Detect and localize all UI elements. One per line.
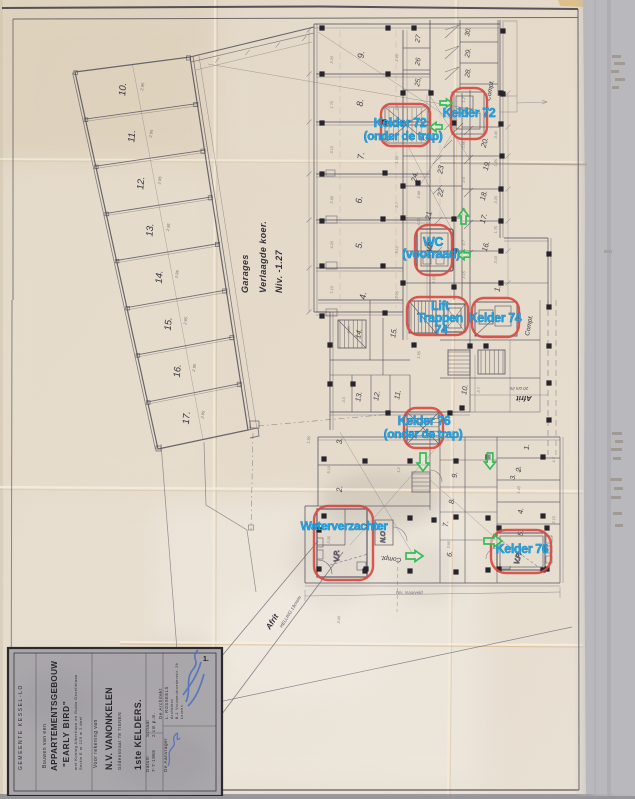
- svg-text:Sectie E nr 229 m 2 deel: Sectie E nr 229 m 2 deel: [79, 716, 83, 770]
- svg-text:2.05: 2.05: [327, 535, 332, 545]
- svg-text:3.: 3.: [510, 474, 517, 480]
- svg-text:74: 74: [434, 323, 448, 337]
- svg-text:14.: 14.: [154, 270, 166, 284]
- svg-text:5.: 5.: [354, 240, 365, 249]
- svg-text:2.98: 2.98: [417, 190, 422, 200]
- svg-text:2.45: 2.45: [395, 53, 400, 63]
- svg-text:7-7-1965: 7-7-1965: [151, 750, 156, 772]
- svg-text:Niv. -1.27: Niv. -1.27: [274, 249, 284, 293]
- svg-text:12.: 12.: [135, 176, 147, 190]
- svg-text:10.: 10.: [117, 82, 129, 96]
- svg-text:4.: 4.: [358, 291, 369, 300]
- svg-text:GEMEENTE KESSEL-LO: GEMEENTE KESSEL-LO: [18, 684, 24, 770]
- svg-text:De Architekt: De Architekt: [158, 688, 163, 719]
- svg-text:"EARLY BIRD": "EARLY BIRD": [62, 701, 71, 768]
- svg-text:5.10: 5.10: [395, 245, 400, 254]
- svg-text:2.: 2.: [514, 465, 524, 473]
- svg-text:1.: 1.: [203, 656, 209, 663]
- svg-text:2.15: 2.15: [552, 515, 557, 525]
- svg-text:7.: 7.: [356, 151, 367, 160]
- svg-text:Kelder 76: Kelder 76: [496, 542, 549, 556]
- svg-text:1.: 1.: [522, 443, 532, 450]
- svg-text:Leuven: Leuven: [180, 705, 184, 719]
- svg-text:B.J. Vrouwenbroedersstr. 26: B.J. Vrouwenbroedersstr. 26: [175, 663, 179, 719]
- svg-text:1.95: 1.95: [417, 350, 422, 359]
- svg-text:1.85: 1.85: [307, 435, 312, 444]
- svg-text:3.: 3.: [335, 437, 345, 444]
- svg-text:Gildenstraat 78 TIENEN: Gildenstraat 78 TIENEN: [117, 712, 122, 770]
- svg-text:(onder de trap): (onder de trap): [364, 129, 443, 143]
- svg-text:Niv. maaiveld: Niv. maaiveld: [396, 590, 423, 595]
- svg-text:3.85: 3.85: [462, 140, 467, 149]
- svg-text:(onder de trap): (onder de trap): [384, 427, 463, 441]
- svg-text:Kelder 72: Kelder 72: [374, 116, 427, 130]
- svg-text:Bouwen van een: Bouwen van een: [42, 724, 48, 768]
- svg-text:13.: 13.: [144, 223, 156, 237]
- svg-text:Waterverzachter: Waterverzachter: [301, 519, 389, 533]
- svg-text:11.: 11.: [126, 130, 138, 143]
- svg-text:4.: 4.: [516, 507, 526, 514]
- svg-text:1.10: 1.10: [432, 275, 437, 284]
- svg-text:21: 21: [423, 211, 433, 222]
- svg-text:8.: 8.: [355, 98, 366, 107]
- svg-text:Architect: Architect: [169, 699, 174, 719]
- svg-text:Voor rekening van: Voor rekening van: [93, 719, 99, 768]
- svg-text:9.: 9.: [450, 471, 460, 478]
- svg-text:1.85: 1.85: [494, 158, 499, 167]
- svg-text:1.45: 1.45: [517, 485, 522, 494]
- svg-text:2.05: 2.05: [395, 290, 400, 300]
- svg-text:8.: 8.: [447, 497, 457, 504]
- svg-text:2.20: 2.20: [494, 195, 499, 205]
- svg-text:12.: 12.: [371, 390, 382, 402]
- svg-text:De Aanvrager: De Aanvrager: [163, 738, 168, 772]
- svg-text:14.: 14.: [353, 328, 364, 340]
- svg-text:2.15: 2.15: [462, 270, 467, 280]
- svg-text:Verlaagde koer.: Verlaagde koer.: [258, 221, 268, 293]
- svg-text:N.V. VANONKELEN: N.V. VANONKELEN: [104, 687, 114, 770]
- svg-text:6.: 6.: [354, 195, 365, 204]
- svg-text:17.: 17.: [181, 411, 193, 425]
- svg-text:1.75: 1.75: [494, 225, 499, 234]
- svg-text:1ste KELDERS.: 1ste KELDERS.: [133, 699, 143, 770]
- svg-text:11.: 11.: [392, 389, 403, 400]
- svg-text:2.98: 2.98: [330, 195, 335, 205]
- svg-text:(voorraad): (voorraad): [402, 247, 460, 261]
- svg-text:15.: 15.: [388, 327, 399, 339]
- svg-text:Kelder 76: Kelder 76: [398, 414, 451, 428]
- svg-text:4.20: 4.20: [330, 240, 335, 249]
- svg-text:13.: 13.: [353, 391, 364, 403]
- svg-text:5.10: 5.10: [327, 465, 332, 474]
- svg-text:Kelder 72: Kelder 72: [443, 106, 496, 120]
- svg-text:3.40: 3.40: [337, 615, 342, 624]
- svg-text:6.: 6.: [445, 550, 455, 557]
- svg-text:3.10: 3.10: [330, 145, 335, 154]
- svg-text:1.10: 1.10: [330, 285, 335, 294]
- svg-text:20 cm /m: 20 cm /m: [510, 386, 530, 391]
- svg-text:Afrit: Afrit: [516, 394, 533, 403]
- svg-text:1.75: 1.75: [330, 100, 335, 109]
- svg-text:2.: 2.: [335, 485, 345, 493]
- svg-text:Garages: Garages: [240, 254, 250, 293]
- svg-text:3.40: 3.40: [494, 130, 499, 139]
- svg-text:15.: 15.: [163, 317, 175, 331]
- svg-text:met Koning Albertlaan en Guido: met Koning Albertlaan en Guido Gezellela…: [74, 674, 78, 770]
- svg-text:1.95: 1.95: [395, 155, 400, 164]
- svg-text:APPARTEMENTSGEBOUW: APPARTEMENTSGEBOUW: [50, 661, 59, 771]
- svg-text:2.20: 2.20: [330, 55, 335, 65]
- svg-text:3.10: 3.10: [494, 255, 499, 264]
- svg-text:7.: 7.: [441, 520, 451, 527]
- svg-text:3.85: 3.85: [447, 540, 452, 549]
- svg-text:Kelder 74: Kelder 74: [469, 311, 522, 325]
- svg-text:16.: 16.: [172, 364, 184, 378]
- svg-text:10.: 10.: [459, 384, 470, 396]
- svg-text:4.20: 4.20: [417, 217, 422, 226]
